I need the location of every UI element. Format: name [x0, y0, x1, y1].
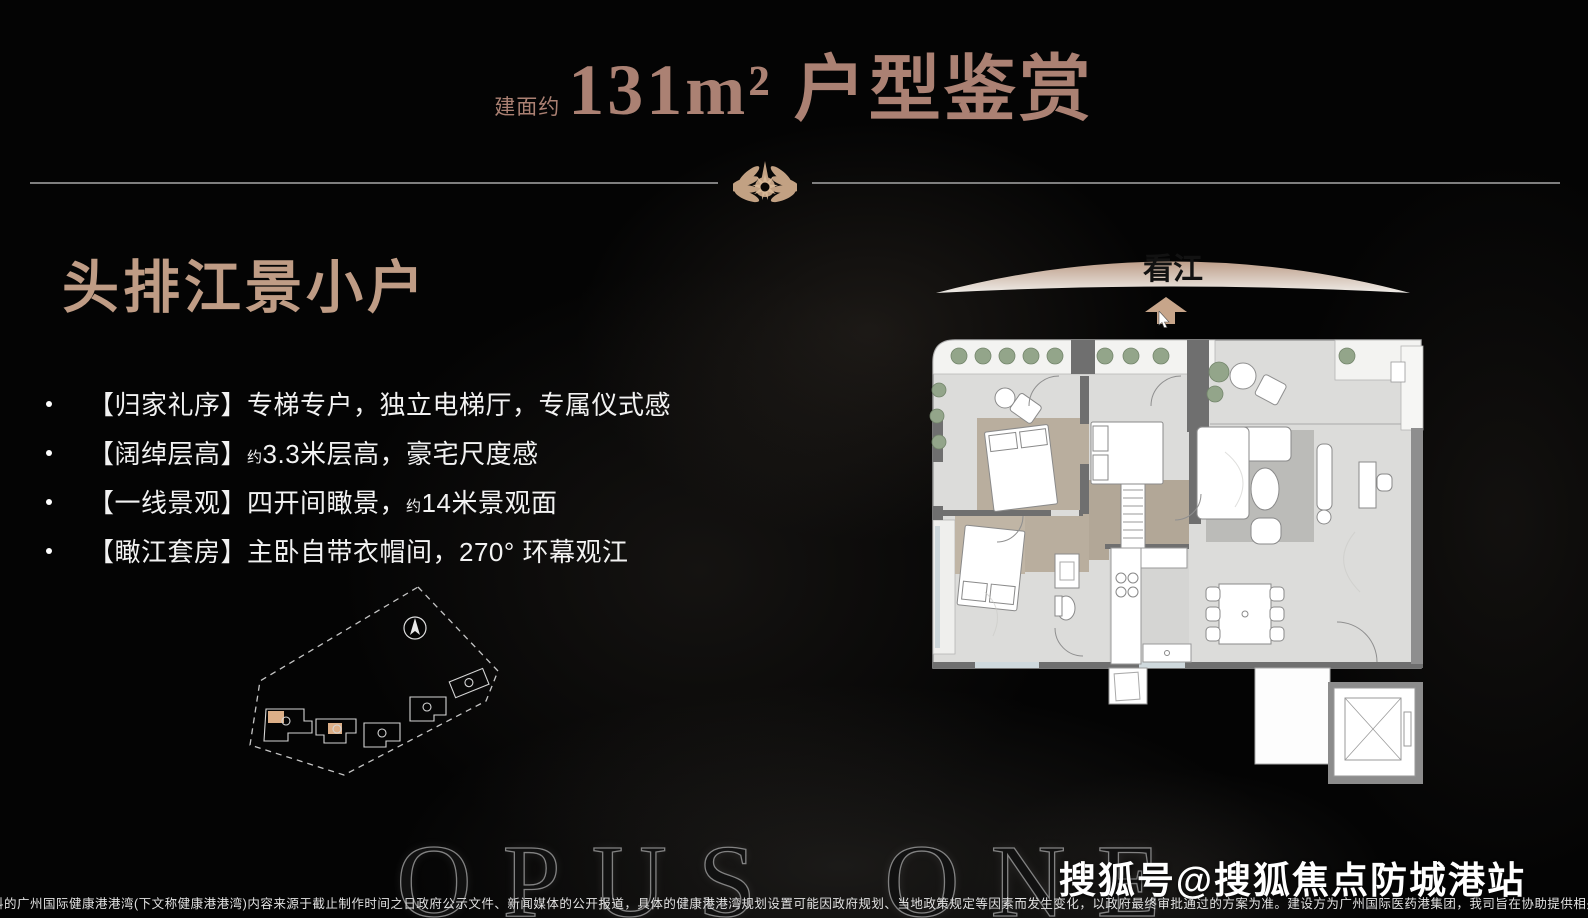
feature-bullet: 【瞰江套房】 主卧自带衣帽间，270° 环幕观江	[40, 526, 671, 575]
bullet-text: 四开间瞰景，	[247, 483, 406, 520]
site-plan	[240, 573, 508, 788]
feature-bullet: 【一线景观】 四开间瞰景， 约 14米景观面	[40, 477, 671, 526]
bullet-tag: 【归家礼序】	[88, 385, 247, 422]
bullet-text: 14米景观面	[422, 483, 558, 520]
approx-label: 约	[406, 495, 422, 516]
page-title: 建面约131m² 户型鉴赏	[0, 30, 1588, 135]
floor-plan	[925, 332, 1427, 784]
private-lobby	[1255, 668, 1330, 764]
elevator-shaft	[1328, 682, 1423, 784]
mouse-cursor-icon	[1158, 311, 1171, 328]
feature-bullet: 【阔绰层高】 约 3.3米层高，豪宅尺度感	[40, 428, 671, 477]
feature-list: 【归家礼序】 专梯专户，独立电梯厅，专属仪式感 【阔绰层高】 约 3.3米层高，…	[40, 379, 671, 575]
approx-label: 约	[247, 446, 263, 467]
bullet-dot	[46, 548, 52, 554]
dining-set	[1206, 584, 1284, 644]
bullet-tag: 【阔绰层高】	[88, 434, 247, 471]
page-title-text: 131m² 户型鉴赏	[568, 50, 1094, 130]
compass-icon	[404, 617, 426, 639]
bullet-text: 专梯专户，独立电梯厅，专属仪式感	[247, 385, 671, 422]
bullet-text: 3.3米层高，豪宅尺度感	[263, 434, 539, 471]
divider-left	[30, 182, 718, 184]
bullet-dot	[46, 499, 52, 505]
area-prefix-label: 建面约	[494, 95, 560, 119]
ac-ledge	[1109, 668, 1147, 704]
bullet-tag: 【瞰江套房】	[88, 532, 247, 569]
bullet-text: 主卧自带衣帽间，270° 环幕观江	[247, 532, 629, 569]
bullet-tag: 【一线景观】	[88, 483, 247, 520]
legal-disclaimer: 料的广州国际健康港港湾(下文称健康港港湾)内容来源于截止制作时间之日政府公示文件…	[0, 893, 1588, 912]
building-footprints	[264, 668, 489, 747]
divider-right	[812, 182, 1560, 184]
closet	[1121, 484, 1145, 550]
phoenix-emblem-icon	[733, 156, 797, 208]
bullet-dot	[46, 450, 52, 456]
section-heading: 头排江景小户	[62, 242, 428, 324]
feature-bullet: 【归家礼序】 专梯专户，独立电梯厅，专属仪式感	[40, 379, 671, 428]
bullet-dot	[46, 401, 52, 407]
slide-page: 建面约131m² 户型鉴赏 头排江景小户	[0, 0, 1588, 918]
view-direction-arc: 看江	[933, 246, 1413, 296]
view-label: 看江	[1143, 253, 1203, 286]
